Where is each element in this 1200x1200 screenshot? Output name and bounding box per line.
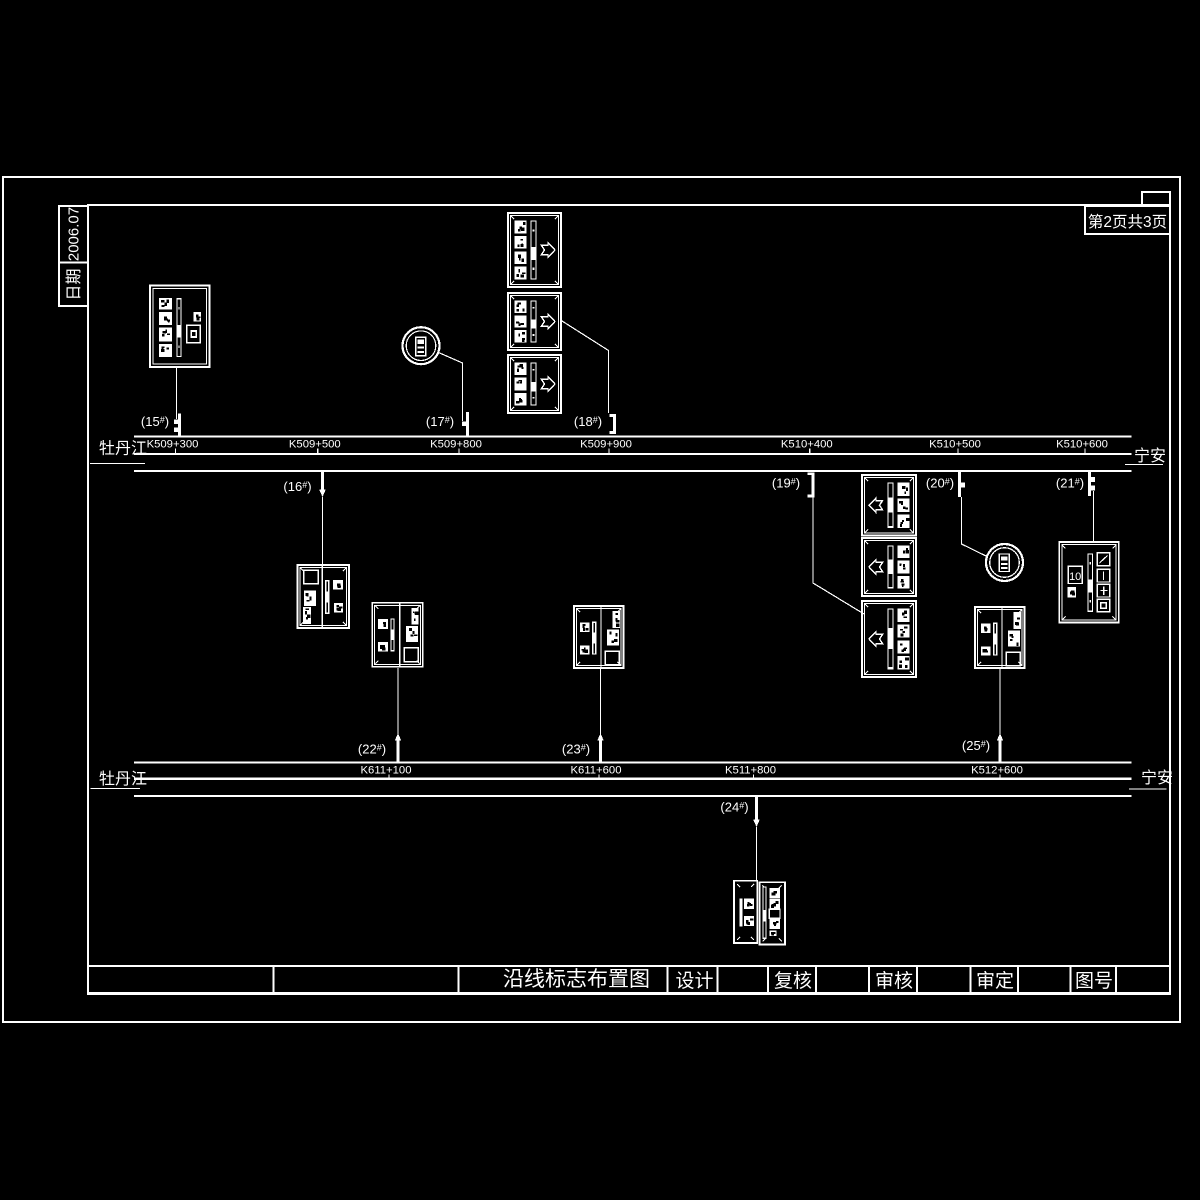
svg-text:审定: 审定: [976, 970, 1014, 992]
svg-text:图号: 图号: [1075, 971, 1113, 992]
svg-text:K509+500: K509+500: [289, 439, 341, 451]
svg-text:宁安: 宁安: [1134, 447, 1166, 465]
svg-text:日期: 日期: [65, 268, 83, 300]
svg-text:(22#): (22#): [358, 742, 386, 757]
svg-text:K509+900: K509+900: [580, 439, 632, 451]
svg-text:K509+800: K509+800: [430, 439, 482, 451]
svg-text:(21#): (21#): [1056, 476, 1084, 491]
svg-text:沿线标志布置图: 沿线标志布置图: [503, 968, 650, 991]
svg-text:(19#): (19#): [772, 476, 800, 491]
svg-text:审核: 审核: [875, 970, 913, 992]
svg-text:2006.07: 2006.07: [66, 207, 83, 261]
svg-text:K512+600: K512+600: [971, 765, 1023, 777]
svg-text:K510+600: K510+600: [1056, 439, 1108, 451]
svg-text:宁安: 宁安: [1141, 769, 1173, 787]
svg-text:(18#): (18#): [574, 414, 602, 429]
svg-text:(16#): (16#): [283, 479, 311, 494]
svg-text:牡丹江: 牡丹江: [99, 770, 147, 788]
svg-text:K510+500: K510+500: [929, 439, 981, 451]
svg-text:第2页共3页: 第2页共3页: [1088, 213, 1167, 231]
svg-text:K511+800: K511+800: [725, 765, 776, 777]
svg-text:(15#): (15#): [141, 414, 169, 429]
svg-text:K611+600: K611+600: [571, 765, 622, 777]
svg-text:(20#): (20#): [926, 476, 954, 491]
svg-text:K611+100: K611+100: [361, 765, 412, 777]
svg-text:设计: 设计: [675, 970, 713, 992]
svg-text:(24#): (24#): [720, 800, 748, 815]
svg-text:(25#): (25#): [962, 738, 990, 753]
svg-text:复核: 复核: [774, 970, 812, 992]
svg-text:K509+300: K509+300: [147, 439, 199, 451]
svg-text:(17#): (17#): [426, 414, 454, 429]
svg-text:10: 10: [1069, 571, 1081, 583]
svg-text:K510+400: K510+400: [781, 439, 833, 451]
svg-text:牡丹江: 牡丹江: [99, 440, 147, 458]
svg-text:(23#): (23#): [562, 742, 590, 757]
